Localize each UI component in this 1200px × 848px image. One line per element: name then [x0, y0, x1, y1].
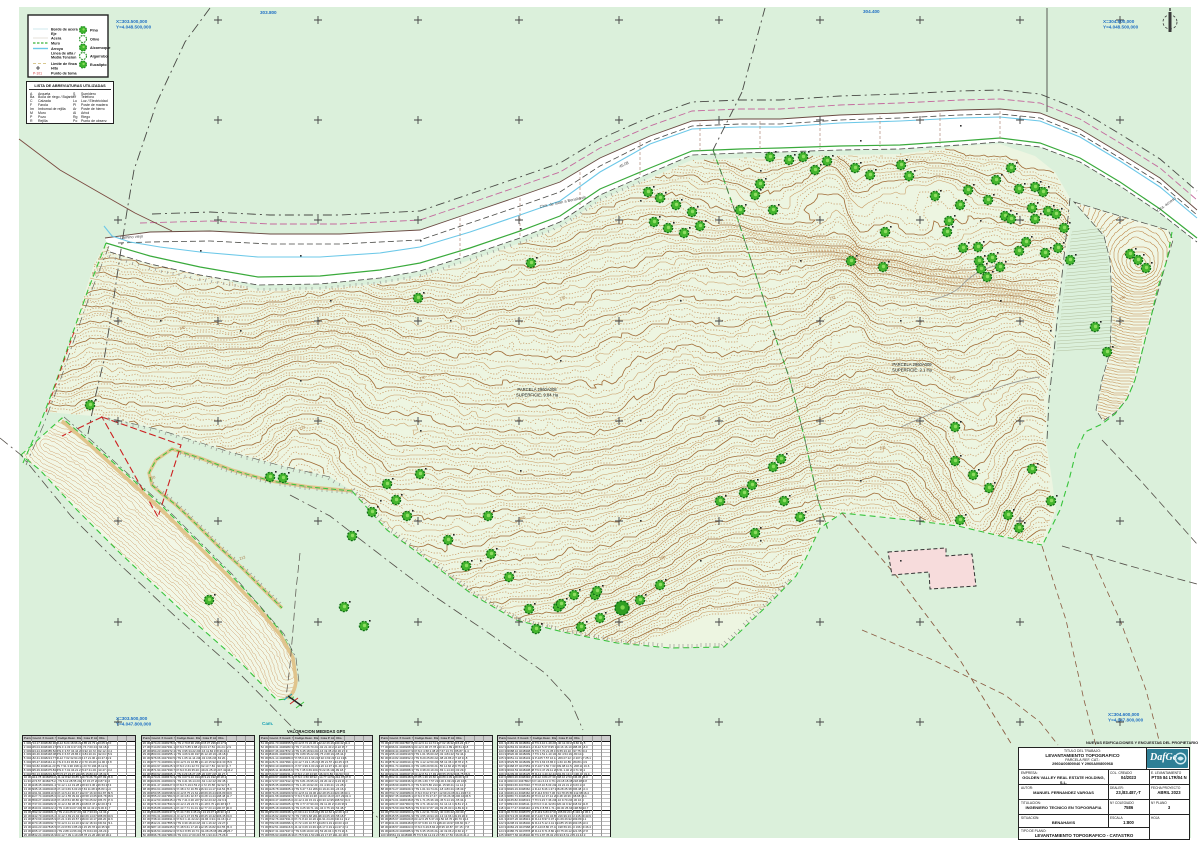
svg-text:Y=4.048.500,000: Y=4.048.500,000	[116, 25, 152, 30]
svg-text:PARCELA 2960A008: PARCELA 2960A008	[517, 387, 557, 392]
svg-text:Muro: Muro	[51, 41, 61, 45]
svg-text:Eje: Eje	[51, 32, 57, 36]
svg-text:X=303.500,000: X=303.500,000	[116, 716, 148, 721]
svg-text:Y=4.047.800,000: Y=4.047.800,000	[116, 722, 152, 727]
svg-text:X=304.600,000: X=304.600,000	[1108, 712, 1140, 717]
svg-text:Arroyo: Arroyo	[51, 47, 64, 51]
svg-text:Y=4.047.800,000: Y=4.047.800,000	[1108, 718, 1144, 723]
svg-text:Media Tension: Media Tension	[51, 55, 77, 59]
svg-text:Borde de acera: Borde de acera	[51, 27, 79, 31]
svg-text:Punto de toma: Punto de toma	[51, 71, 78, 75]
svg-text:Hito: Hito	[51, 66, 59, 70]
svg-text:303.800: 303.800	[260, 10, 277, 15]
svg-text:PARCELA 2960A009: PARCELA 2960A009	[892, 362, 932, 367]
svg-text:Eucalipto: Eucalipto	[90, 63, 107, 67]
svg-text:SUPERFICIE: 2.1 Ha: SUPERFICIE: 2.1 Ha	[892, 368, 932, 373]
svg-text:Limite de finca: Limite de finca	[51, 62, 78, 66]
svg-text:Algarrobo: Algarrobo	[90, 55, 108, 59]
svg-text:Cam.: Cam.	[262, 721, 273, 726]
svg-text:Pino: Pino	[90, 29, 99, 33]
svg-text:Alcornoque: Alcornoque	[90, 46, 111, 50]
svg-text:Olivo: Olivo	[90, 38, 100, 42]
svg-text:X=303.500,000: X=303.500,000	[116, 19, 148, 24]
svg-text:304.400: 304.400	[863, 9, 880, 14]
svg-text:P-101: P-101	[33, 72, 42, 76]
svg-text:SUPERFICIE: 9.84 Ha: SUPERFICIE: 9.84 Ha	[516, 393, 559, 398]
svg-text:Y=4.048.500,000: Y=4.048.500,000	[1103, 25, 1139, 30]
svg-text:Acera: Acera	[51, 36, 62, 40]
svg-text:X=304.600,000: X=304.600,000	[1103, 19, 1135, 24]
